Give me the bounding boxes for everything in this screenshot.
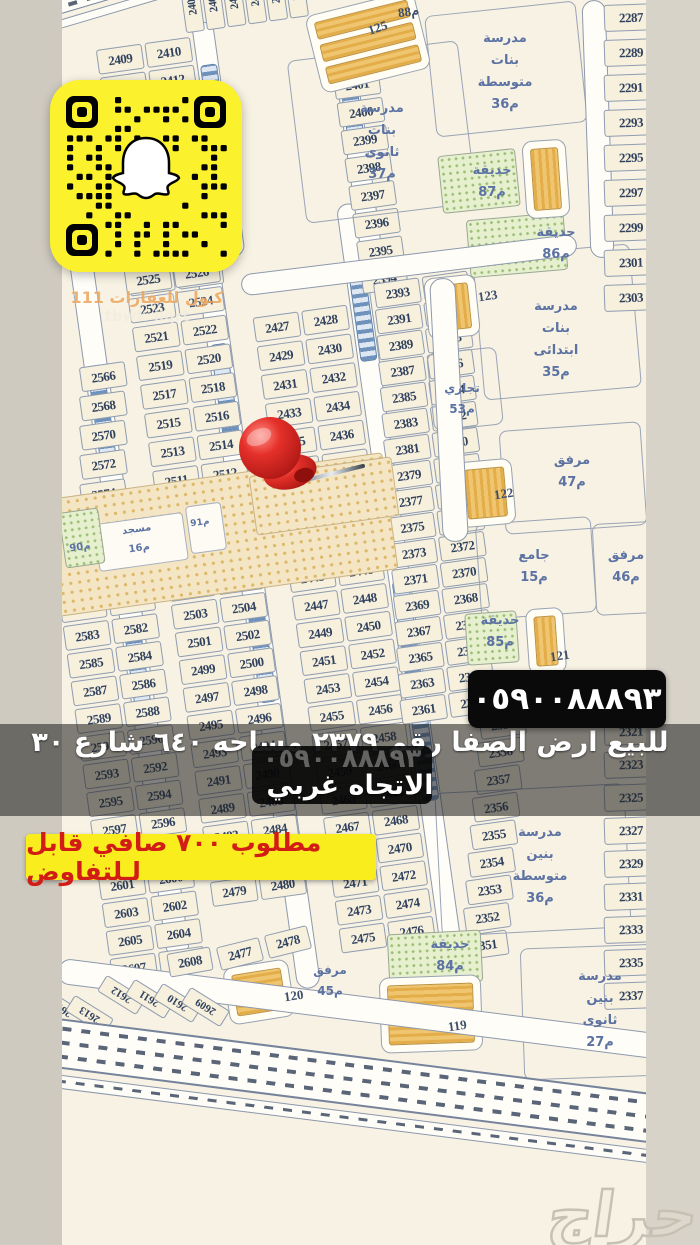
map-label-line: بنين [578, 988, 622, 1010]
plot-number: 2408 [184, 0, 199, 15]
plot-cell: 2602 [150, 890, 199, 921]
plot-cell: 2451 [299, 645, 348, 676]
map-label-line: 47م [554, 472, 590, 494]
plot-cell: 2570 [79, 420, 128, 451]
plot-cell: 2584 [115, 641, 164, 672]
map-label-line: 15م [518, 567, 549, 589]
map-label-girls-elementary-school: مدرسةبناتابتدائى35م [534, 296, 579, 384]
snapcode-icon [64, 94, 228, 258]
plot-cell: 2409 [96, 44, 145, 75]
plot-cell: 2603 [102, 897, 151, 928]
map-label-line: مدرسة [360, 98, 404, 120]
map-label-park-86: حديقة86م [537, 222, 576, 266]
plot-cell: 2513 [148, 436, 197, 467]
plot-cell: 2501 [175, 626, 224, 657]
street-number-label: 121 [549, 647, 571, 666]
plot-cell: 2517 [140, 379, 189, 410]
plot-cell: 2450 [344, 611, 393, 642]
plot-cell: 2432 [309, 362, 358, 393]
map-label-park-91: 91م [189, 513, 210, 533]
plot-cell: 2588 [123, 696, 172, 727]
plot-number: 2405 [247, 0, 262, 7]
plot-cell: 2519 [136, 350, 185, 381]
plot-cell: 2583 [63, 620, 112, 651]
map-label-line: 36م [513, 888, 568, 910]
map-label-line: 16م [123, 537, 155, 560]
map-label-park-90: 90م [68, 537, 92, 559]
map-label-line: 35م [534, 362, 579, 384]
plot-cell: 2456 [356, 694, 405, 725]
plot-cell: 2472 [379, 860, 428, 891]
plot-number: 2407 [205, 0, 220, 13]
plot-cell: 2503 [171, 599, 220, 630]
map-label-facility-45: مرفق45م [313, 960, 347, 1002]
map-label-boys-secondary-school: مدرسةبنينثانوى27م [578, 966, 622, 1054]
street-number-label: 88م [397, 3, 420, 22]
map-label-line: مدرسة [578, 966, 622, 988]
agency-handle: tbwk_llqrt [42, 307, 252, 325]
plot-cell: 2452 [348, 638, 397, 669]
plot-cell: 2361 [399, 694, 448, 725]
plot-cell: 2499 [179, 654, 228, 685]
plot-cell: 2410 [144, 37, 193, 68]
street-number-label: 123 [477, 287, 499, 306]
plot-cell: 2428 [301, 305, 350, 336]
plot-cell: 2453 [303, 673, 352, 704]
plot-cell: 2473 [335, 895, 384, 926]
map-label-line: جامع [518, 545, 549, 567]
red-pushpin-icon [224, 410, 366, 522]
plot-cell: 2568 [79, 390, 128, 421]
listing-image: 2408240724062405240424032409241024112412… [0, 0, 700, 1245]
map-label-park-85: حديقة85م [481, 610, 520, 654]
map-label-park-84: حديقة84م [431, 934, 470, 978]
plot-cell: 2566 [79, 361, 128, 392]
haraj-logo: حراج [523, 1178, 700, 1245]
plot-cell: 2429 [257, 340, 306, 371]
map-label-line: مدرسة [478, 28, 533, 50]
plot-cell: 2604 [154, 918, 203, 949]
map-label-line: 36م [478, 94, 533, 116]
phone-number-banner: ٠٥٩٠٠٨٨٨٩٣ [468, 670, 666, 728]
plot-cell: 2427 [253, 311, 302, 342]
map-label-line: 85م [481, 632, 520, 654]
map-label-line: مرفق [554, 450, 590, 472]
map-label-line: ثانوى [360, 142, 404, 164]
map-label-line: ابتدائى [534, 340, 579, 362]
map-label-line: 86م [537, 244, 576, 266]
plot-cell: 2585 [67, 648, 116, 679]
map-label-line: 46م [608, 567, 644, 589]
plot-cell: 2497 [182, 682, 231, 713]
street-number-label: 122 [493, 485, 515, 504]
map-label-line: 53م [444, 399, 480, 420]
government-building [521, 139, 570, 220]
map-label-line: 91م [189, 513, 210, 533]
right-gray-bar [646, 0, 700, 1245]
map-label-line: تجاري [444, 378, 480, 399]
plot-cell: 2475 [338, 922, 387, 953]
agency-name: كـول للعقارات 111 [42, 288, 252, 307]
map-label-facility-46: مرفق46م [608, 545, 644, 589]
map-label-girls-secondary-school: مدرسةبناتثانوى37م [360, 98, 404, 186]
street-number-label: 119 [447, 1017, 468, 1035]
map-label-girls-middle-school: مدرسةبناتمتوسطة36م [478, 28, 533, 116]
map-label-mosque-16: مسجد16م [121, 518, 155, 560]
plot-cell: 2454 [352, 666, 401, 697]
plot-cell: 2582 [111, 613, 160, 644]
map-label-line: 27م [578, 1032, 622, 1054]
map-label-line: 45م [313, 981, 347, 1002]
map-label-line: بنات [534, 318, 579, 340]
map-label-line: متوسطة [513, 866, 568, 888]
map-label-line: حديقة [481, 610, 520, 632]
snapchat-qr-code [50, 80, 242, 272]
agency-watermark: كـول للعقارات 111 tbwk_llqrt [42, 288, 252, 325]
plot-cell: 2430 [305, 333, 354, 364]
map-label-line: مدرسة [513, 822, 568, 844]
plot-cell: 2470 [375, 832, 424, 863]
map-label-line: بنات [478, 50, 533, 72]
map-label-park-87: حديقة87م [473, 160, 512, 204]
map-label-line: متوسطة [478, 72, 533, 94]
map-label-line: حديقة [537, 222, 576, 244]
map-label-line: 37م [360, 164, 404, 186]
plot-number: 2404 [268, 0, 283, 4]
plot-cell: 2447 [292, 590, 341, 621]
plot-cell: 2474 [383, 888, 432, 919]
plot-cell: 2408 [179, 0, 206, 33]
street-number-label: 120 [283, 987, 305, 1006]
map-label-line: مرفق [608, 545, 644, 567]
plot-number: 2406 [226, 0, 241, 10]
plot-cell: 2587 [70, 675, 119, 706]
plot-cell: 2515 [144, 407, 193, 438]
map-label-line: ثانوى [578, 1010, 622, 1032]
plot-cell: 2431 [261, 369, 310, 400]
map-label-mosque-15: جامع15م [518, 545, 549, 589]
price-banner: مطلوب ٧٠٠ صافي قابل لـلتفاوض [26, 834, 376, 880]
map-label-line: بنات [360, 120, 404, 142]
map-label-line: حديقة [473, 160, 512, 182]
plot-cell: 2521 [132, 321, 181, 352]
map-label-line: مدرسة [534, 296, 579, 318]
map-label-line: 90م [68, 537, 92, 559]
listing-direction: الاتجاه غربي [0, 770, 700, 801]
plot-cell: 2586 [119, 668, 168, 699]
plot-cell: 2449 [296, 617, 345, 648]
plot-number: 2403 [288, 0, 303, 1]
map-label-line: مرفق [313, 960, 347, 981]
plot-cell: 2605 [106, 925, 155, 956]
map-label-line: حديقة [431, 934, 470, 956]
map-label-line: 87م [473, 182, 512, 204]
map-label-commercial-53: تجاري53م [444, 378, 480, 420]
title-banner: للبيع ارض الصفا رقم ٢٣٧٩ مساحه ٦٤٠ شارع … [0, 724, 700, 816]
map-label-boys-middle-school: مدرسةبنينمتوسطة36م [513, 822, 568, 910]
map-label-facility-47: مرفق47م [554, 450, 590, 494]
map-label-line: بنين [513, 844, 568, 866]
government-building [525, 607, 568, 675]
plot-cell: 2448 [340, 583, 389, 614]
map-label-line: 84م [431, 956, 470, 978]
building-bar [530, 147, 562, 211]
